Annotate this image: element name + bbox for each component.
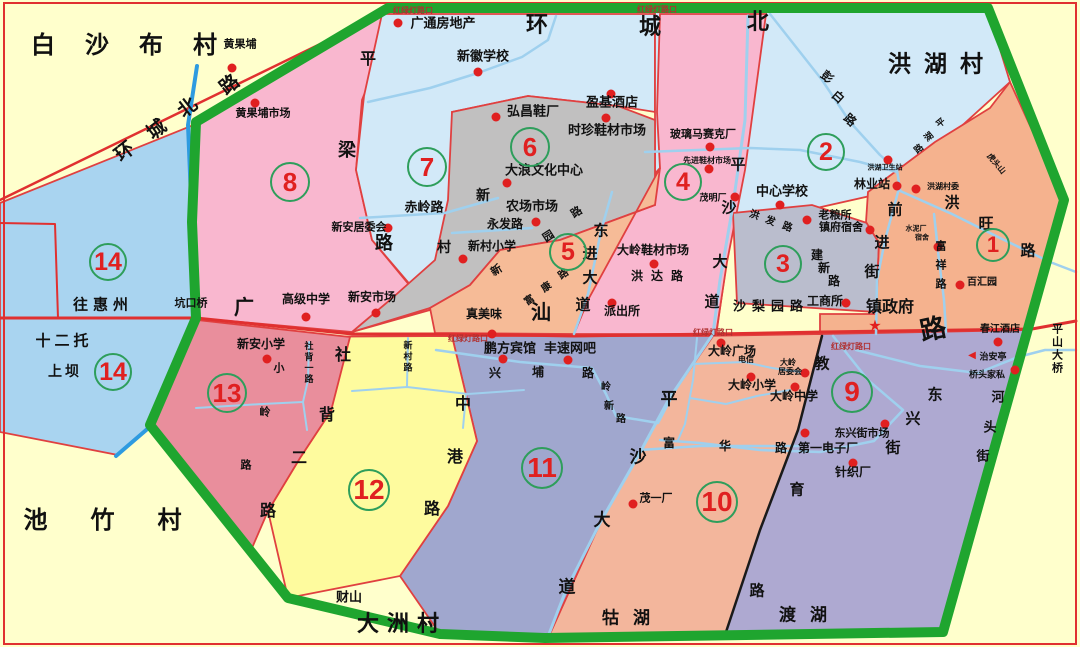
map-label: 中: [455, 397, 471, 413]
map-label: 平: [360, 52, 376, 68]
map-label: 路: [241, 461, 252, 472]
map-label: 路: [582, 367, 594, 379]
poi-dot-icon: [791, 383, 800, 392]
poi-dot-icon: [459, 255, 468, 264]
map-label: 弘昌鞋厂: [507, 105, 559, 118]
map-label: 牯湖: [602, 610, 664, 627]
map-label: 岭: [260, 408, 271, 419]
poi-dot-icon: [801, 369, 810, 378]
map-label: 新徽学校: [457, 50, 509, 63]
zone-badge-14: 14: [94, 353, 132, 391]
pointer-left-icon: ◀: [968, 351, 976, 361]
map-label: 路: [781, 222, 794, 235]
poi-dot-icon: [1011, 366, 1020, 375]
map-label: 路: [913, 143, 926, 156]
map-label: 东兴街市场: [835, 429, 890, 440]
map-label: 居委会: [778, 368, 802, 376]
map-label: 治安亭: [979, 353, 1006, 362]
poi-dot-icon: [705, 165, 714, 174]
map-label: 新安市场: [348, 291, 396, 303]
poi-dot-icon: [608, 299, 617, 308]
poi-dot-icon: [717, 339, 726, 348]
poi-dot-icon: [564, 356, 573, 365]
map-label: 大岭广场: [708, 345, 756, 357]
map-label: 农场市场: [506, 200, 558, 213]
map-label: 背: [319, 408, 335, 424]
poi-dot-icon: [801, 429, 810, 438]
poi-dot-icon: [842, 299, 851, 308]
poi-dot-icon: [263, 355, 272, 364]
map-label: 真美味: [466, 308, 502, 320]
map-label: 路: [775, 442, 787, 454]
map-label: 洪: [748, 210, 761, 223]
zone-badge-7: 7: [407, 147, 447, 187]
label-layer: 白沙布村洪湖村池竹村大洲村往惠州十二托上坝坑口桥财山牯湖渡湖环城北路环城北平梁路…: [0, 0, 1080, 647]
map-label: 高级中学: [282, 293, 330, 305]
map-label: 新: [818, 262, 830, 274]
poi-dot-icon: [893, 182, 902, 191]
map-label: 环: [112, 139, 139, 166]
map-label: 路: [616, 415, 626, 425]
zone-badge-1: 1: [976, 228, 1010, 262]
map-label: 大浪文化中心: [505, 164, 583, 177]
map-label: 新: [489, 263, 504, 278]
poi-dot-icon: [602, 114, 611, 123]
map-label: 财山: [336, 591, 362, 604]
map-label: 平: [935, 117, 948, 130]
poi-dot-icon: [731, 193, 740, 202]
poi-dot-icon: [532, 218, 541, 227]
map-label: 广: [234, 298, 254, 318]
map-label: 鹏方宾馆: [484, 342, 536, 355]
map-label: 平: [661, 391, 678, 408]
poi-dot-icon: [384, 224, 393, 233]
zone-badge-3: 3: [764, 245, 802, 283]
zone-badge-10: 10: [696, 481, 738, 523]
map-label: 路: [749, 584, 764, 599]
map-label: 大: [712, 255, 727, 270]
map-label: 广通房地产: [410, 17, 475, 30]
zone-badge-6: 6: [510, 127, 550, 167]
poi-dot-icon: [994, 338, 1003, 347]
map-label: 水泥厂: [906, 226, 927, 233]
poi-dot-icon: [881, 420, 890, 429]
poi-dot-icon: [849, 459, 858, 468]
map-label: 沙: [630, 449, 647, 466]
map-label: 老粮所: [819, 211, 852, 222]
map-label: 路: [260, 504, 276, 520]
poi-dot-icon: [956, 281, 965, 290]
map-label: 新安小学: [237, 338, 285, 350]
map-label: 大岭中学: [770, 390, 818, 402]
map-label: 兴: [905, 412, 920, 427]
map-label: 路: [1020, 244, 1035, 259]
poi-dot-icon: [503, 179, 512, 188]
map-label: 虎头山: [985, 152, 1007, 176]
map-label: 新村路: [403, 341, 412, 374]
map-label: 路: [918, 314, 949, 345]
map-label: 上坝: [48, 364, 82, 378]
map-label: 百汇园: [967, 278, 997, 288]
poi-dot-icon: [776, 201, 785, 210]
poi-dot-icon: [394, 19, 403, 28]
map-label: 十二托: [35, 334, 92, 349]
map-label: 永发路: [487, 218, 523, 230]
star-icon: ★: [868, 319, 881, 334]
map-label: 环: [526, 14, 548, 36]
map-label: 二: [291, 451, 307, 467]
poi-dot-icon: [803, 216, 812, 225]
map-label: 大洲村: [357, 613, 447, 635]
map-label: 新安居委会: [332, 223, 387, 234]
map-label: 洪湖村委: [927, 183, 959, 191]
map-label: 北: [747, 11, 769, 33]
poi-dot-icon: [251, 99, 260, 108]
zone-badge-8: 8: [270, 162, 310, 202]
map-label: 建: [811, 249, 823, 261]
map-label: 中心学校: [756, 185, 808, 198]
map-label: 时珍鞋材市场: [568, 124, 646, 137]
map-label: 埔: [532, 366, 544, 378]
map-label: 平山大桥: [1051, 323, 1062, 375]
map-label: 平: [730, 158, 745, 173]
map-label: 镇政府: [866, 300, 914, 316]
poi-dot-icon: [934, 243, 943, 252]
poi-dot-icon: [884, 156, 893, 165]
poi-dot-icon: [488, 330, 497, 339]
map-label: 路: [424, 502, 440, 518]
map-label: 黄果埔市场: [236, 109, 291, 120]
map-label: 大: [582, 271, 597, 286]
map-label: 沙: [721, 201, 736, 216]
map-label: 桥头家私: [969, 371, 1005, 380]
map-label: 社: [335, 348, 351, 364]
map-label: 红绿灯路口: [693, 329, 733, 337]
map-label: 路: [842, 112, 859, 129]
map-label: 沙梨园路: [733, 300, 809, 313]
map-label: 街: [864, 265, 879, 280]
poi-dot-icon: [747, 373, 756, 382]
map-label: 头: [983, 421, 996, 434]
map-label: 大岭: [780, 359, 796, 367]
map-label: 红绿灯路口: [831, 343, 871, 351]
map-label: 富: [663, 437, 675, 449]
zone-badge-5: 5: [549, 233, 587, 271]
map-label: 宿舍: [915, 235, 929, 242]
zone-badge-13: 13: [207, 373, 247, 413]
map-label: 茂一厂: [640, 494, 673, 505]
map-label: 镇府宿舍: [819, 223, 863, 234]
map-label: 城: [639, 16, 661, 38]
map-label: 路: [375, 234, 393, 252]
map-label: 道: [575, 298, 590, 313]
poi-dot-icon: [866, 226, 875, 235]
map-label: 丰速网吧: [544, 342, 596, 355]
map-label: 玻璃马赛克厂: [670, 130, 736, 141]
map-label: 新: [476, 188, 490, 202]
map-label: 康: [540, 281, 554, 295]
poi-dot-icon: [607, 90, 616, 99]
map-label: 街: [885, 441, 900, 456]
map-label: 电信: [738, 356, 754, 364]
poi-dot-icon: [302, 313, 311, 322]
map-label: 洪: [944, 196, 959, 211]
map-label: 岭: [601, 383, 611, 393]
map-label: 渡湖: [779, 607, 841, 624]
map-label: 路: [217, 72, 244, 99]
map-label: 路: [828, 275, 840, 287]
map-label: 港: [447, 450, 463, 466]
map-label: 祥: [936, 261, 947, 272]
map-label: 针织厂: [835, 466, 871, 478]
map-label: 池竹村: [24, 509, 225, 533]
map-label: 大岭鞋材市场: [617, 244, 689, 256]
poi-dot-icon: [912, 185, 921, 194]
map-label: 前: [887, 203, 902, 218]
map-label: 育: [789, 483, 804, 498]
map-label: 洪湖卫生站: [868, 165, 903, 172]
map-label: 黄果埔: [224, 40, 257, 51]
map-label: 教: [814, 357, 829, 372]
map-label: 发: [764, 216, 777, 229]
map-label: 彭: [819, 69, 836, 86]
map-label: 河: [991, 391, 1004, 404]
district-map: 白沙布村洪湖村池竹村大洲村往惠州十二托上坝坑口桥财山牯湖渡湖环城北路环城北平梁路…: [0, 0, 1080, 647]
zone-badge-14: 14: [89, 243, 127, 281]
map-label: 第一电子厂: [798, 442, 858, 454]
map-label: 进: [874, 236, 889, 251]
poi-dot-icon: [474, 68, 483, 77]
map-label: 东: [927, 388, 942, 403]
map-label: 红绿灯路口: [637, 6, 677, 14]
map-label: 洪达路: [631, 270, 691, 282]
map-label: 路: [569, 205, 584, 220]
map-label: 往惠州: [73, 298, 133, 313]
map-label: 华: [719, 440, 731, 452]
map-label: 红绿灯路口: [393, 7, 433, 15]
map-label: 小: [274, 364, 285, 375]
map-label: 坑口桥: [175, 299, 208, 310]
map-label: 林业站: [854, 178, 890, 190]
map-label: 大: [594, 512, 611, 529]
map-label: 北: [175, 95, 202, 122]
map-label: 工商所: [807, 295, 843, 307]
zone-badge-11: 11: [521, 447, 563, 489]
map-label: 茂明厂: [699, 194, 726, 203]
map-label: 新村小学: [468, 240, 516, 252]
map-label: 路: [936, 280, 947, 291]
map-label: 梁: [338, 141, 356, 159]
map-label: 兴: [489, 367, 501, 379]
map-label: 春江酒店: [980, 325, 1020, 335]
poi-dot-icon: [372, 309, 381, 318]
poi-dot-icon: [650, 260, 659, 269]
map-label: 村: [437, 240, 451, 254]
poi-dot-icon: [228, 64, 237, 73]
map-label: 白沙布村: [31, 34, 247, 58]
map-label: 白: [830, 89, 847, 106]
map-label: 洪湖村: [888, 53, 996, 76]
map-label: 街: [976, 450, 989, 463]
zone-badge-2: 2: [807, 133, 845, 171]
map-label: 东: [593, 224, 608, 239]
map-label: 湖: [923, 131, 936, 144]
map-label: 道: [704, 295, 719, 310]
map-label: 新: [604, 402, 614, 412]
poi-dot-icon: [706, 143, 715, 152]
map-label: 赤岭路: [404, 201, 443, 214]
map-label: 道: [559, 579, 576, 596]
zone-badge-9: 9: [831, 371, 873, 413]
map-label: 汕: [531, 303, 551, 323]
poi-dot-icon: [492, 113, 501, 122]
map-label: 城: [144, 117, 171, 144]
zone-badge-12: 12: [348, 469, 390, 511]
map-label: 富: [523, 294, 537, 308]
poi-dot-icon: [499, 355, 508, 364]
map-label: 社背一路: [304, 341, 313, 385]
poi-dot-icon: [629, 500, 638, 509]
map-label: 红绿灯路口: [448, 335, 488, 343]
zone-badge-4: 4: [664, 163, 702, 201]
